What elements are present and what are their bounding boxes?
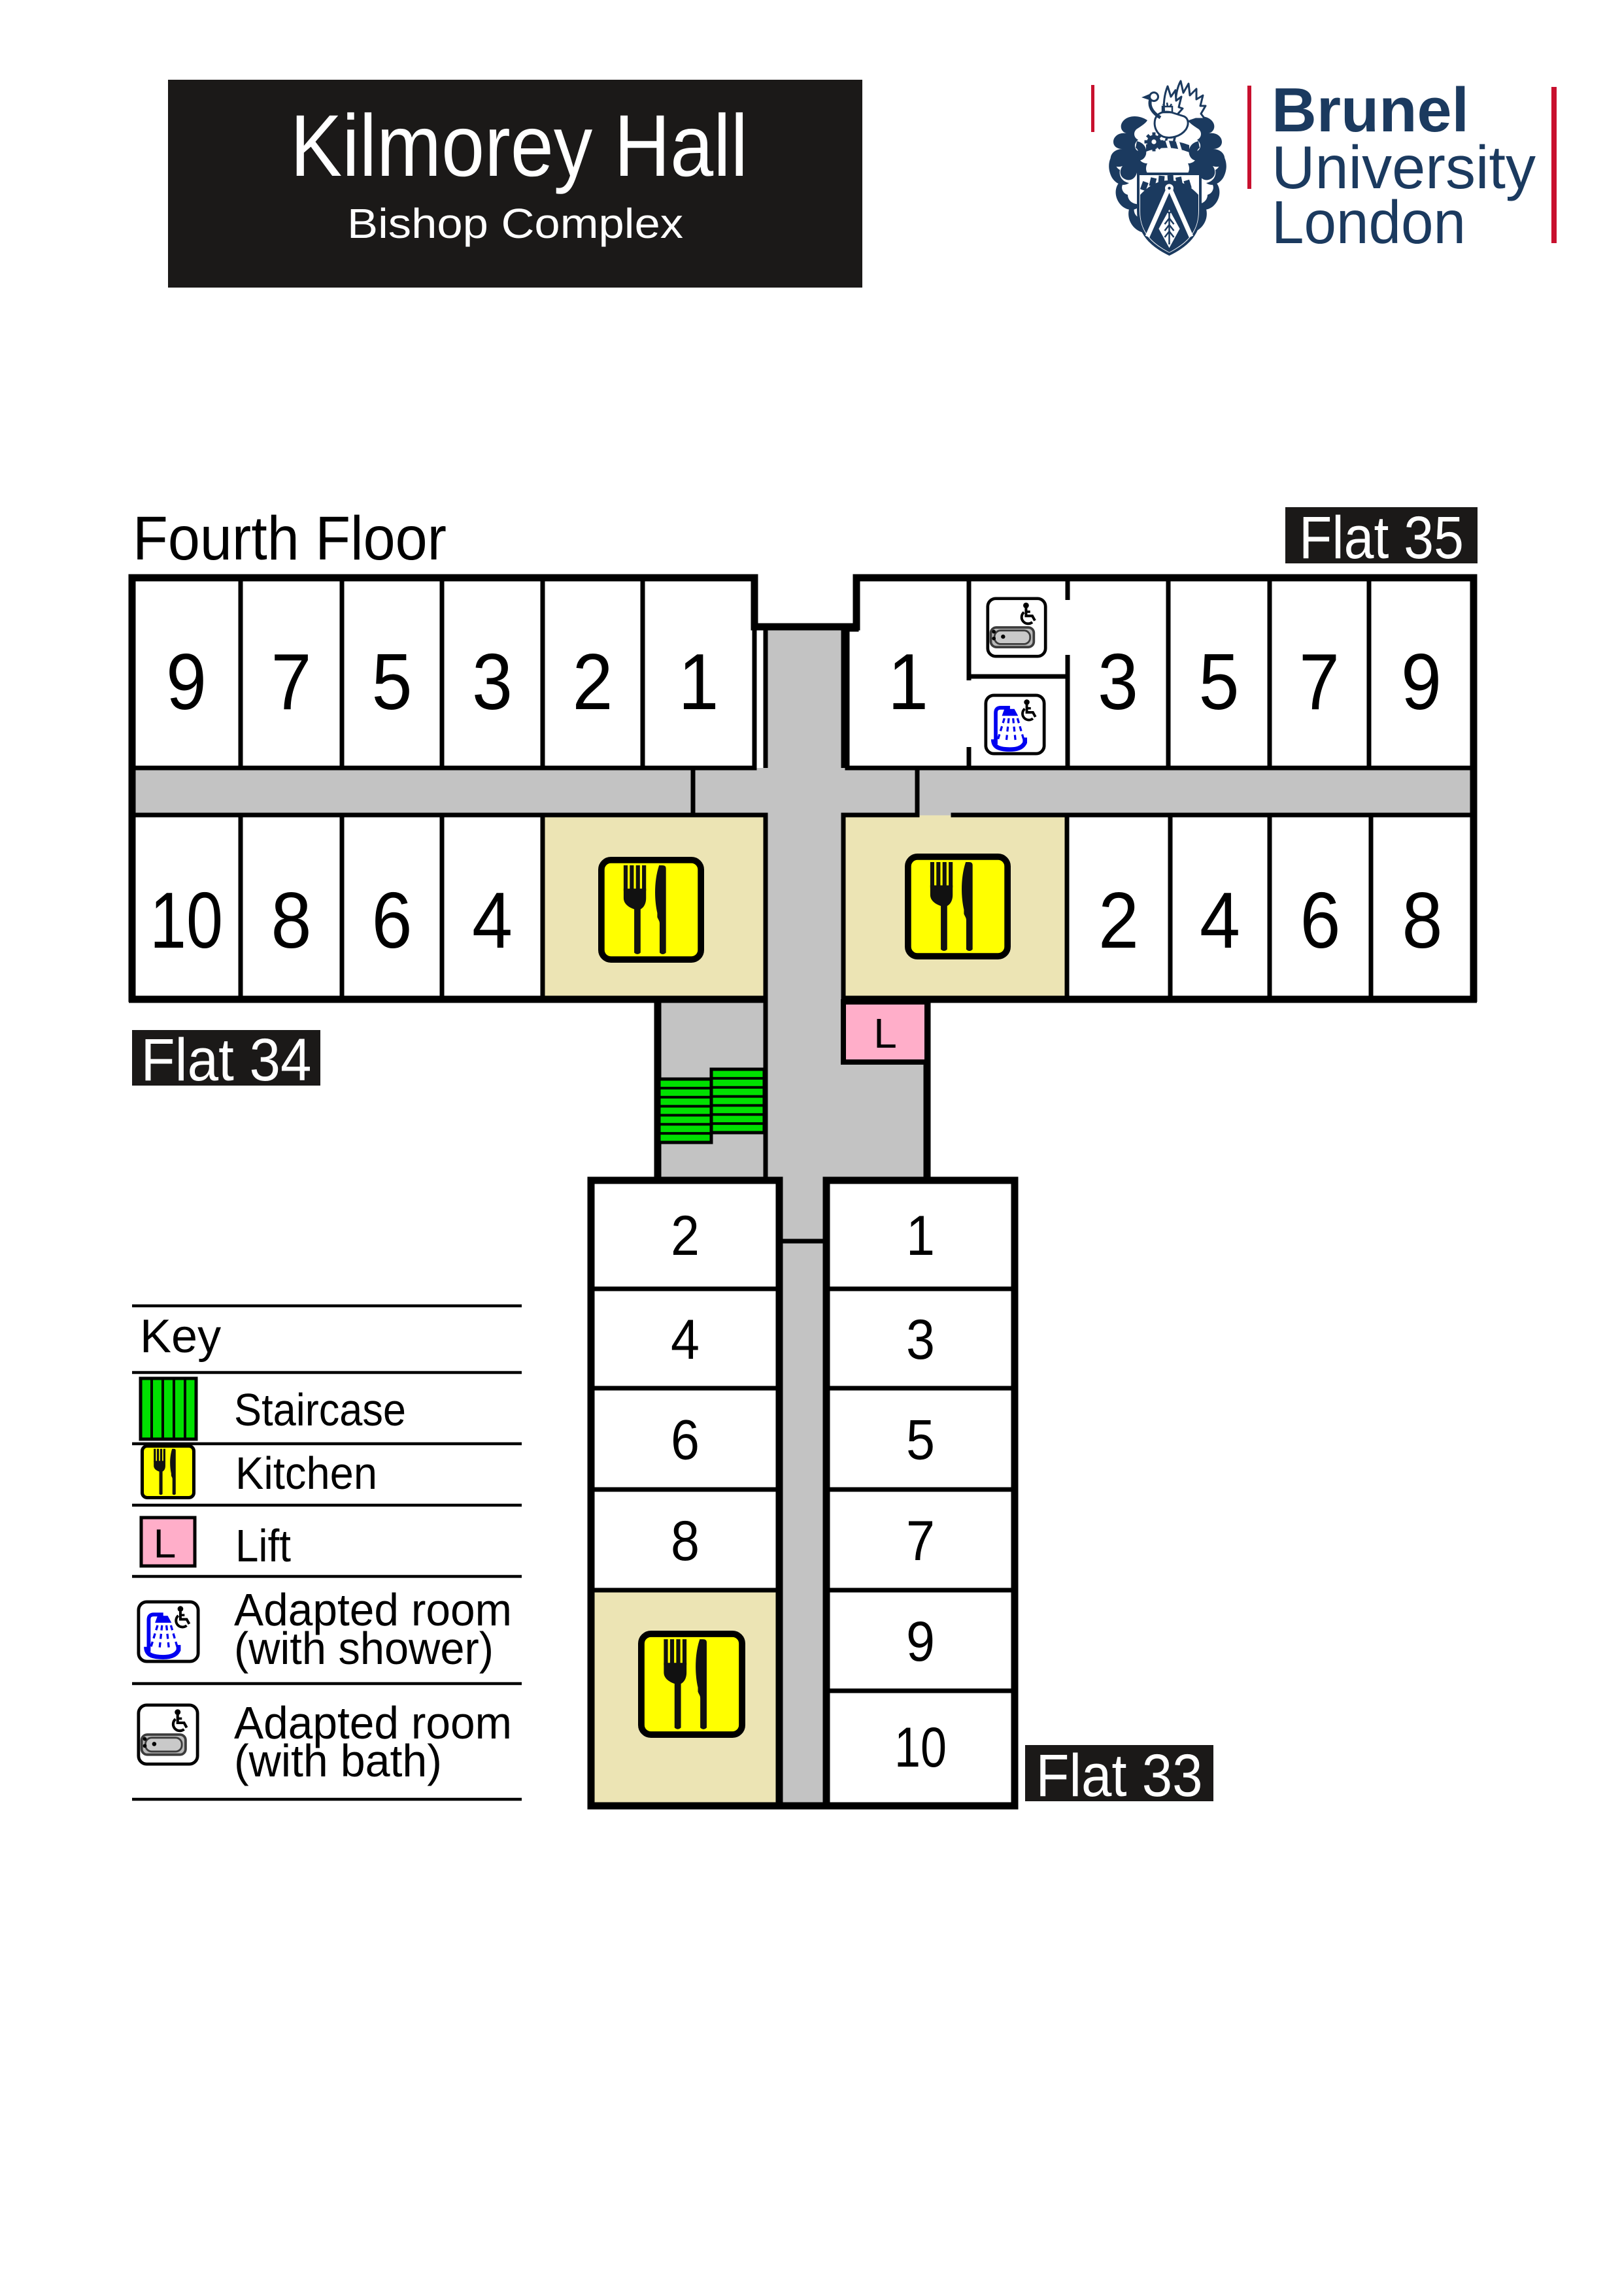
svg-text:Fourth Floor: Fourth Floor xyxy=(133,504,447,573)
svg-text:(with bath): (with bath) xyxy=(234,1735,442,1786)
svg-text:(with shower): (with shower) xyxy=(234,1623,494,1674)
svg-text:Flat 34: Flat 34 xyxy=(141,1027,312,1093)
svg-text:3: 3 xyxy=(906,1308,935,1371)
svg-text:9: 9 xyxy=(906,1610,935,1673)
svg-text:8: 8 xyxy=(1402,876,1443,965)
svg-text:7: 7 xyxy=(1299,637,1340,726)
svg-text:L: L xyxy=(873,1010,897,1057)
svg-text:Bishop Complex: Bishop Complex xyxy=(347,200,683,247)
svg-text:7: 7 xyxy=(271,637,312,726)
svg-text:2: 2 xyxy=(1098,876,1139,965)
svg-text:10: 10 xyxy=(150,876,223,965)
svg-text:5: 5 xyxy=(906,1409,935,1472)
svg-text:4: 4 xyxy=(1200,876,1240,965)
svg-text:6: 6 xyxy=(372,876,413,965)
svg-text:5: 5 xyxy=(1199,637,1240,726)
svg-text:2: 2 xyxy=(671,1205,700,1267)
svg-text:8: 8 xyxy=(671,1510,700,1572)
svg-text:1: 1 xyxy=(679,637,719,726)
svg-text:1: 1 xyxy=(888,637,928,726)
svg-text:6: 6 xyxy=(671,1409,700,1472)
svg-text:4: 4 xyxy=(472,876,513,965)
svg-text:Kilmorey Hall: Kilmorey Hall xyxy=(290,97,748,195)
svg-text:L: L xyxy=(154,1522,176,1567)
svg-text:Flat 35: Flat 35 xyxy=(1299,505,1464,571)
svg-text:7: 7 xyxy=(906,1510,935,1572)
svg-text:4: 4 xyxy=(671,1308,700,1371)
svg-text:2: 2 xyxy=(573,637,613,726)
svg-text:8: 8 xyxy=(271,876,312,965)
svg-text:3: 3 xyxy=(472,637,513,726)
svg-text:Flat 33: Flat 33 xyxy=(1036,1742,1203,1809)
svg-text:Staircase: Staircase xyxy=(234,1384,406,1435)
svg-text:Lift: Lift xyxy=(235,1520,291,1571)
svg-text:6: 6 xyxy=(1300,876,1341,965)
svg-text:9: 9 xyxy=(166,637,207,726)
svg-text:1: 1 xyxy=(906,1205,935,1267)
svg-text:Key: Key xyxy=(140,1310,221,1363)
svg-text:10: 10 xyxy=(894,1716,947,1779)
svg-text:9: 9 xyxy=(1401,637,1442,726)
svg-text:Kitchen: Kitchen xyxy=(235,1448,377,1499)
svg-text:London: London xyxy=(1272,188,1466,256)
svg-text:5: 5 xyxy=(372,637,413,726)
svg-text:3: 3 xyxy=(1098,637,1138,726)
